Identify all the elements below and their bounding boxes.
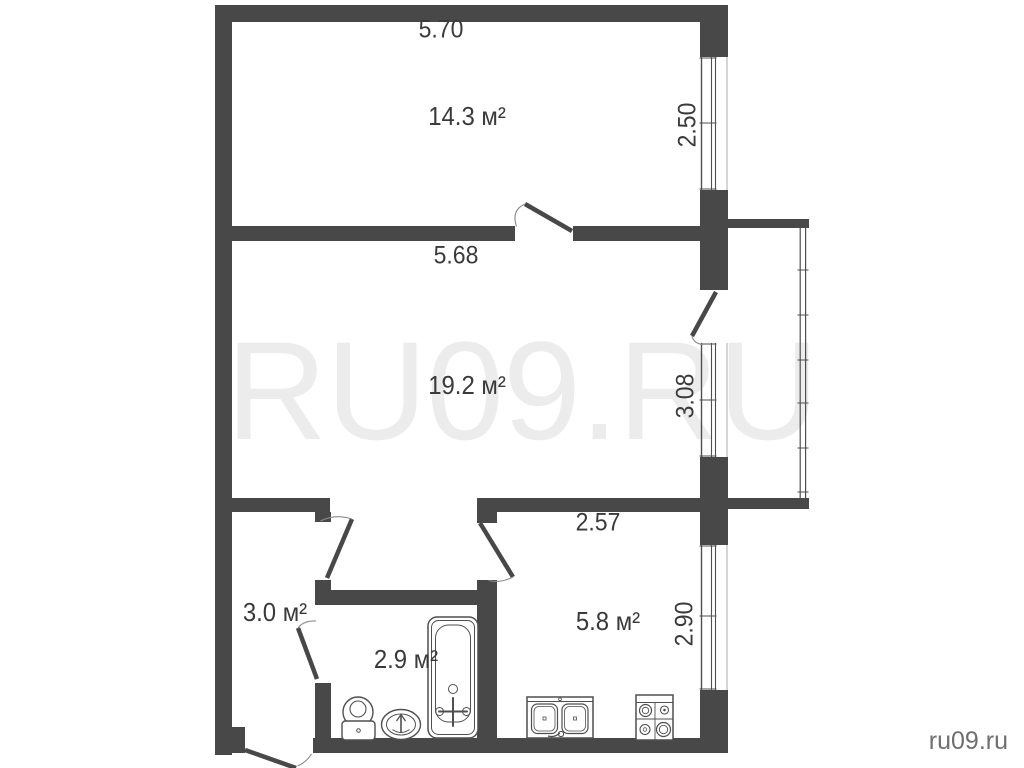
wall-hall-stub-mid [315, 580, 331, 605]
dimension-label-room2-depth: 3.08 [674, 374, 699, 419]
toilet-icon [342, 697, 375, 740]
door-entrance [245, 750, 312, 768]
dimension-label-room1-width: 5.70 [419, 18, 464, 43]
floor-plan: RU09.RU [0, 0, 1024, 768]
wall-hall-stub-top [315, 512, 331, 522]
wall-right-seg2 [700, 190, 728, 290]
wall-kitchen-left [477, 580, 497, 753]
room-area-label-room2: 19.2 м² [428, 372, 506, 398]
wall-kitchen-stub-top [477, 512, 497, 523]
balcony-glazing [798, 228, 809, 498]
wall-left [215, 5, 232, 755]
room-area-label-hallway: 3.0 м² [243, 599, 307, 625]
bath-sink-icon [382, 710, 421, 740]
wall-lower-divider-left [232, 498, 330, 512]
door-room1 [515, 204, 572, 231]
wall-right-seg1 [700, 5, 728, 57]
dimension-label-kitchen-width: 2.57 [576, 511, 621, 536]
floor-plan-drawing [0, 0, 1024, 768]
wall-room-divider-left [232, 226, 515, 241]
dimension-label-room1-depth: 2.50 [676, 103, 701, 148]
wall-room-divider-right [573, 226, 700, 241]
window-kitchen [700, 545, 728, 690]
window-room2 [700, 343, 728, 457]
door-bathroom [298, 621, 317, 679]
door-hall-corridor [321, 517, 353, 578]
windows [700, 57, 809, 690]
room-area-label-bathroom: 2.9 м² [374, 646, 438, 672]
stove-icon [636, 695, 673, 740]
wall-balcony-top [728, 219, 809, 228]
wall-balcony-bottom [728, 498, 809, 509]
window-room1 [700, 57, 728, 190]
door-kitchen [480, 523, 513, 581]
door-balcony [692, 292, 716, 345]
room-area-label-room1: 14.3 м² [428, 103, 506, 129]
site-watermark: ru09.ru [929, 727, 1008, 756]
wall-bathroom-top [331, 590, 477, 605]
wall-right-seg3 [700, 457, 728, 545]
wall-bottom-corner [215, 727, 245, 753]
dimension-label-room2-width: 5.68 [434, 244, 479, 269]
wall-top [215, 5, 728, 22]
kitchen-sink-icon [527, 697, 593, 738]
room-area-label-kitchen: 5.8 м² [576, 608, 640, 634]
bathtub-icon [428, 617, 478, 738]
dimension-label-kitchen-depth: 2.90 [673, 602, 698, 647]
